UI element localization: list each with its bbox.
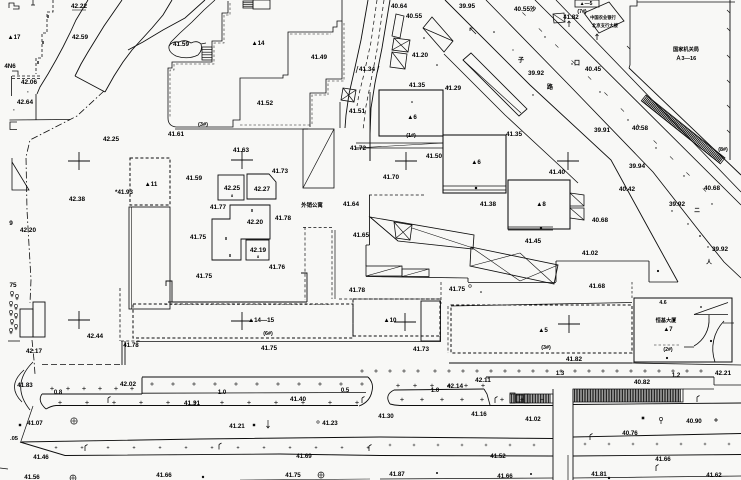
svg-text:41.51: 41.51	[349, 108, 365, 115]
svg-text:42.14: 42.14	[447, 383, 463, 390]
svg-text:41.59: 41.59	[173, 41, 189, 48]
svg-text:41.59: 41.59	[186, 175, 202, 182]
svg-text:8: 8	[257, 255, 259, 259]
svg-text:1.0: 1.0	[431, 388, 440, 394]
svg-text:42.38: 42.38	[69, 196, 85, 203]
svg-text:40.68: 40.68	[704, 185, 720, 192]
svg-text:9: 9	[9, 220, 13, 227]
svg-text:▲5: ▲5	[538, 327, 548, 334]
svg-text:40.82: 40.82	[634, 379, 650, 386]
svg-text:41.82: 41.82	[566, 356, 582, 363]
svg-text:41.63: 41.63	[233, 147, 249, 154]
svg-text:(3#): (3#)	[541, 345, 551, 351]
svg-text:42.27: 42.27	[254, 186, 270, 193]
svg-text:40.45: 40.45	[585, 66, 601, 73]
svg-text:41.66: 41.66	[156, 472, 172, 479]
svg-text:40.42: 40.42	[619, 186, 635, 193]
svg-text:II: II	[251, 208, 253, 213]
svg-text:4N6: 4N6	[4, 63, 16, 70]
svg-text:42.59: 42.59	[72, 34, 88, 41]
svg-text:Ａ3—16: Ａ3—16	[676, 54, 697, 62]
svg-text:0.5: 0.5	[341, 388, 350, 394]
svg-text:路: 路	[547, 83, 554, 91]
svg-text:42.11: 42.11	[475, 377, 491, 384]
svg-text:42.06: 42.06	[21, 79, 37, 86]
svg-text:1.0: 1.0	[218, 390, 227, 396]
svg-text:42.20: 42.20	[20, 227, 36, 234]
svg-text:*41.93: *41.93	[115, 189, 133, 196]
svg-text:外销公寓: 外销公寓	[301, 201, 323, 209]
svg-text:41.49: 41.49	[311, 54, 327, 61]
svg-text:41.66: 41.66	[655, 456, 671, 463]
svg-text:▲11: ▲11	[145, 181, 158, 188]
svg-text:39.95: 39.95	[459, 3, 475, 10]
svg-text:(2#): (2#)	[663, 347, 672, 353]
svg-text:▲6: ▲6	[407, 114, 417, 121]
svg-text:41.77: 41.77	[210, 204, 226, 211]
svg-text:40.90: 40.90	[686, 418, 702, 425]
svg-text:8: 8	[231, 194, 233, 198]
svg-text:41.73: 41.73	[272, 168, 288, 175]
svg-text:42.25: 42.25	[224, 185, 240, 192]
svg-text:41.29: 41.29	[445, 85, 461, 92]
svg-text:41.75: 41.75	[285, 472, 301, 479]
svg-text:41.75: 41.75	[449, 286, 465, 293]
svg-text:41.38: 41.38	[480, 201, 496, 208]
svg-text:41.62: 41.62	[706, 472, 722, 479]
svg-text:42.20: 42.20	[247, 219, 263, 226]
svg-text:北京支行大楼: 北京支行大楼	[592, 22, 618, 29]
svg-text:40.58: 40.58	[632, 125, 648, 132]
svg-text:42.64: 42.64	[17, 99, 33, 106]
svg-text:0.8: 0.8	[54, 390, 63, 396]
svg-text:(7#): (7#)	[577, 9, 586, 15]
svg-text:41.75: 41.75	[196, 273, 212, 280]
svg-text:中国农业银行: 中国农业银行	[590, 14, 616, 21]
svg-text:41.78: 41.78	[123, 342, 139, 349]
svg-text:1.2: 1.2	[672, 373, 681, 379]
svg-text:41.70: 41.70	[383, 174, 399, 181]
svg-text:▲8: ▲8	[536, 201, 546, 208]
svg-text:(1#): (1#)	[406, 133, 416, 139]
svg-text:恒基大厦: 恒基大厦	[656, 316, 678, 324]
svg-text:41.50: 41.50	[426, 153, 442, 160]
svg-text:(6#): (6#)	[263, 331, 273, 337]
svg-text:40.68: 40.68	[592, 217, 608, 224]
svg-text:国家机关局: 国家机关局	[673, 45, 699, 53]
svg-text:口: 口	[574, 60, 580, 67]
svg-text:41.69: 41.69	[296, 453, 312, 460]
svg-text:41.40: 41.40	[549, 169, 565, 176]
svg-text:42.21: 42.21	[715, 370, 731, 377]
svg-text:1.3: 1.3	[556, 371, 565, 377]
svg-text:4.6: 4.6	[659, 300, 666, 306]
svg-text:41.72: 41.72	[350, 145, 366, 152]
svg-text:42.19: 42.19	[250, 247, 266, 254]
svg-text:41.21: 41.21	[229, 423, 245, 430]
svg-text:▲6: ▲6	[471, 159, 481, 166]
svg-text:人: 人	[705, 258, 712, 266]
svg-text:41.83: 41.83	[17, 382, 33, 389]
svg-text:二: 二	[694, 207, 700, 214]
svg-text:II: II	[229, 253, 231, 258]
svg-text:42.17: 42.17	[26, 348, 42, 355]
svg-text:39.92: 39.92	[669, 201, 685, 208]
svg-text:II: II	[47, 14, 50, 19]
svg-text:沙: 沙	[530, 6, 536, 13]
svg-text:II: II	[37, 60, 40, 65]
svg-text:41.66: 41.66	[497, 473, 513, 480]
svg-text:40.64: 40.64	[391, 3, 407, 10]
svg-text:41.82: 41.82	[563, 14, 579, 21]
svg-text:(8#): (8#)	[718, 147, 728, 153]
svg-text:41.35: 41.35	[409, 82, 425, 89]
svg-text:41.81: 41.81	[591, 471, 607, 478]
svg-text:41.30: 41.30	[378, 413, 394, 420]
svg-text:▲17: ▲17	[7, 34, 21, 41]
svg-text:41.64: 41.64	[343, 201, 359, 208]
svg-text:.05: .05	[10, 436, 19, 442]
svg-text:42.25: 42.25	[103, 136, 119, 143]
svg-text:41.07: 41.07	[27, 420, 43, 427]
svg-text:41.75: 41.75	[261, 345, 277, 352]
svg-text:40.55: 40.55	[406, 13, 422, 20]
svg-text:41.02: 41.02	[582, 250, 598, 257]
svg-text:(3#): (3#)	[198, 122, 208, 128]
svg-text:41.34: 41.34	[359, 66, 375, 73]
svg-text:II: II	[42, 40, 45, 45]
svg-text:41.16: 41.16	[471, 411, 487, 418]
svg-text:39.92: 39.92	[712, 246, 728, 253]
svg-text:41.31: 41.31	[184, 400, 200, 407]
svg-text:41.68: 41.68	[589, 283, 605, 290]
svg-text:41.40: 41.40	[290, 396, 306, 403]
svg-text:42.22: 42.22	[71, 3, 87, 10]
svg-text:75: 75	[9, 282, 17, 289]
svg-text:▲14: ▲14	[251, 40, 265, 47]
svg-text:41.35: 41.35	[506, 131, 522, 138]
svg-text:▲10: ▲10	[383, 317, 397, 324]
svg-text:42.44: 42.44	[87, 333, 103, 340]
svg-text:41.65: 41.65	[353, 232, 369, 239]
svg-text:41.76: 41.76	[269, 264, 285, 271]
svg-text:▲14—15: ▲14—15	[248, 317, 275, 324]
svg-text:41.45: 41.45	[525, 238, 541, 245]
svg-text:子: 子	[518, 57, 524, 64]
svg-text:41.73: 41.73	[413, 346, 429, 353]
svg-text:39.91: 39.91	[594, 127, 610, 134]
svg-text:41.75: 41.75	[190, 234, 206, 241]
svg-text:39.94: 39.94	[629, 163, 645, 170]
svg-text:42.02: 42.02	[120, 381, 136, 388]
svg-text:39.92: 39.92	[528, 70, 544, 77]
svg-text:41.78: 41.78	[349, 287, 365, 294]
svg-text:41.02: 41.02	[525, 416, 541, 423]
svg-text:41.61: 41.61	[168, 131, 184, 138]
svg-text:41.52: 41.52	[490, 453, 506, 460]
svg-text:41.20: 41.20	[412, 52, 428, 59]
svg-text:▲7: ▲7	[663, 327, 673, 333]
svg-text:41.46: 41.46	[33, 454, 49, 461]
svg-text:41.52: 41.52	[257, 100, 273, 107]
svg-text:▲—5: ▲—5	[580, 1, 593, 7]
svg-text:II: II	[225, 236, 227, 241]
svg-text:40.55: 40.55	[514, 6, 530, 13]
svg-text:41.23: 41.23	[322, 420, 338, 427]
svg-text:41.56: 41.56	[24, 474, 40, 480]
svg-text:41.87: 41.87	[389, 471, 405, 478]
svg-text:41.78: 41.78	[275, 215, 291, 222]
